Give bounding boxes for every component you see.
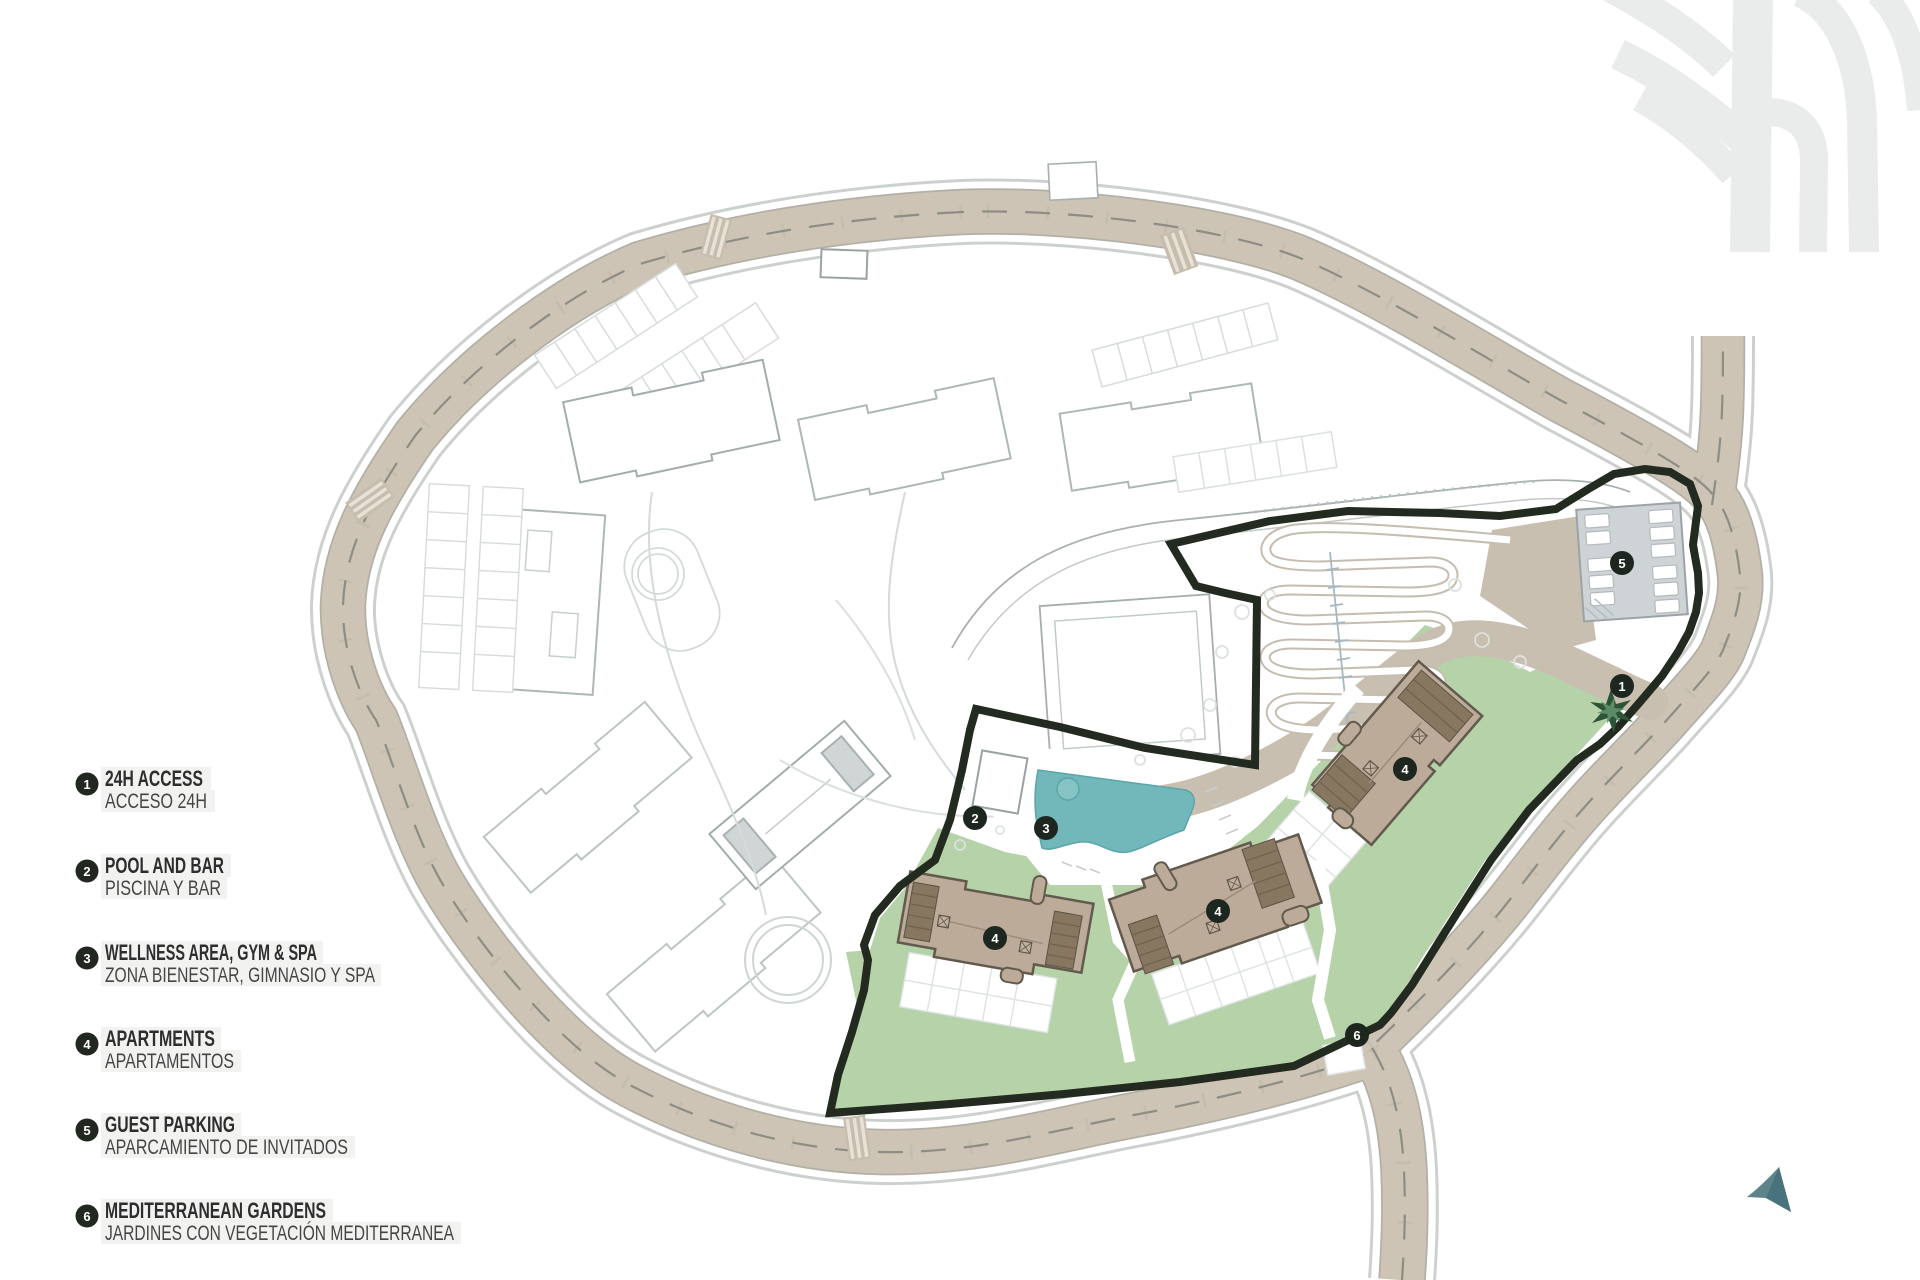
svg-text:4: 4 <box>1214 904 1222 919</box>
svg-text:WELLNESS AREA, GYM & SPA: WELLNESS AREA, GYM & SPA <box>105 940 317 965</box>
svg-text:4: 4 <box>83 1037 91 1052</box>
svg-text:GUEST PARKING: GUEST PARKING <box>105 1112 235 1137</box>
svg-text:APARTAMENTOS: APARTAMENTOS <box>105 1049 234 1073</box>
svg-text:1: 1 <box>1618 679 1625 694</box>
svg-text:JARDINES CON VEGETACIÓN MEDITE: JARDINES CON VEGETACIÓN MEDITERRANEA <box>105 1220 454 1245</box>
svg-text:2: 2 <box>83 864 90 879</box>
svg-text:4: 4 <box>1401 762 1409 777</box>
svg-text:3: 3 <box>1042 821 1049 836</box>
svg-text:5: 5 <box>1618 556 1625 571</box>
svg-text:1: 1 <box>83 777 90 792</box>
svg-text:POOL AND BAR: POOL AND BAR <box>105 853 224 878</box>
svg-text:24H ACCESS: 24H ACCESS <box>105 766 203 791</box>
svg-text:5: 5 <box>83 1123 90 1138</box>
svg-text:APARCAMIENTO DE INVITADOS: APARCAMIENTO DE INVITADOS <box>105 1135 348 1159</box>
svg-text:ACCESO 24H: ACCESO 24H <box>105 789 207 813</box>
svg-text:ZONA BIENESTAR, GIMNASIO Y SPA: ZONA BIENESTAR, GIMNASIO Y SPA <box>105 963 375 987</box>
svg-text:6: 6 <box>83 1209 90 1224</box>
svg-text:2: 2 <box>971 811 978 826</box>
svg-text:6: 6 <box>1353 1028 1360 1043</box>
svg-text:4: 4 <box>991 931 999 946</box>
svg-text:PISCINA Y BAR: PISCINA Y BAR <box>105 876 221 900</box>
svg-text:3: 3 <box>83 951 90 966</box>
svg-text:MEDITERRANEAN GARDENS: MEDITERRANEAN GARDENS <box>105 1198 326 1223</box>
svg-text:APARTMENTS: APARTMENTS <box>105 1026 215 1051</box>
